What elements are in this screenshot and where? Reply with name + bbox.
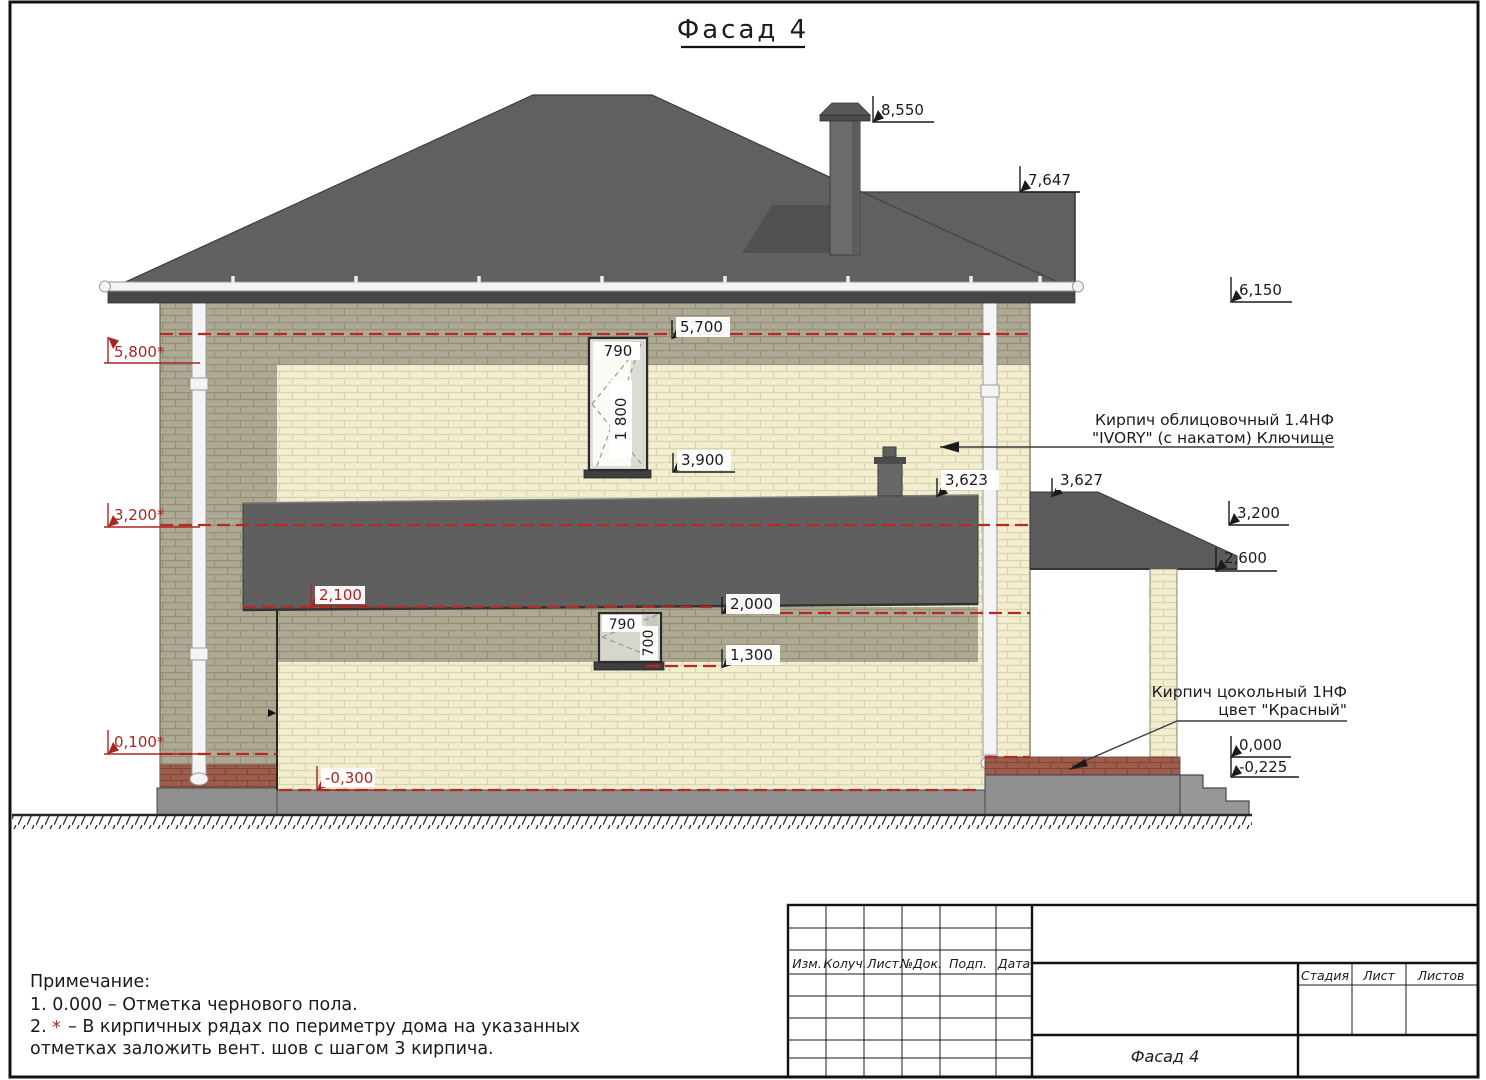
lower-window-height-label: 700 xyxy=(641,630,657,657)
tb-col-ndok: №Док. xyxy=(899,956,942,971)
gutter xyxy=(105,282,1078,291)
base-brick-text-line2: цвет "Красный" xyxy=(1218,701,1347,719)
porch-foundation xyxy=(985,775,1180,815)
downpipe-left-tube xyxy=(192,295,206,780)
left-foundation xyxy=(157,788,277,815)
ground-hatch xyxy=(12,816,1252,829)
porch-roof xyxy=(1030,492,1237,569)
notes-item2-cont: отметках заложить вент. шов с шагом 3 ки… xyxy=(30,1039,494,1059)
bay-vent-cap xyxy=(874,457,906,464)
tb-col-podp: Подп. xyxy=(949,956,987,971)
title-block-dividers xyxy=(1032,905,1478,1077)
drawing-sheet: Фасад 4 790 1 800 790 700 xyxy=(0,0,1486,1080)
chimney-cap xyxy=(820,103,870,115)
facing-brick-text-line1: Кирпич облицовочный 1.4НФ xyxy=(1095,411,1334,429)
title-block-left-rows xyxy=(788,928,1032,1058)
downpipe-left-shoe xyxy=(190,773,208,785)
tb-col-izm: Изм. xyxy=(792,956,821,971)
downpipe-left-sleeve xyxy=(190,378,208,390)
facing-brick-text-line2: "IVORY" (с накатом) Ключище xyxy=(1092,429,1334,447)
downpipe-right-tube xyxy=(983,300,997,755)
upper-window-height-label: 1 800 xyxy=(612,398,630,441)
level-window2-sill-label: 3,900 xyxy=(681,451,724,469)
notes-item1: 1. 0.000 – Отметка чернового пола. xyxy=(30,995,358,1015)
level-porch-roof-top-label: 3,627 xyxy=(1060,471,1103,489)
tb-stadia: Стадия xyxy=(1301,968,1349,983)
level-mark-rear-ridge: 7,647 xyxy=(1020,166,1080,192)
base-brick-text-line1: Кирпич цокольный 1НФ xyxy=(1152,683,1347,701)
level-window2-head-label: 5,700 xyxy=(680,318,723,336)
tb-col-data: Дата xyxy=(997,956,1030,971)
lower-window-width-label: 790 xyxy=(609,617,636,633)
level-rear-ridge-label: 7,647 xyxy=(1028,171,1071,189)
level-mark-plinth-bottom: -0,300 xyxy=(317,766,375,790)
level-porch-floor-bottom-label: -0,225 xyxy=(1239,758,1287,776)
level-mark-porch-floor-bottom: -0,225 xyxy=(1231,757,1299,777)
left-plinth-red-brick xyxy=(160,765,277,790)
chimney-cap-base xyxy=(820,115,870,121)
level-mark-window2-sill: 3,900 xyxy=(673,450,735,472)
level-porch-floor-label: 0,000 xyxy=(1239,736,1282,754)
chimney-body-shade xyxy=(852,120,860,255)
bay-vent-pipe xyxy=(883,447,896,457)
tb-listov: Листов xyxy=(1417,968,1465,983)
tb-col-koluch: Колуч. xyxy=(823,956,866,971)
notes-item2-star: * xyxy=(52,1018,61,1038)
level-window1-sill-label: 1,300 xyxy=(730,646,773,664)
porch-steps xyxy=(1180,775,1249,815)
facade-drawing: Фасад 4 790 1 800 790 700 xyxy=(0,0,1486,1080)
level-vent-mid-label: 3,200* xyxy=(114,506,165,524)
level-window1-head-label: 2,000 xyxy=(730,595,773,613)
level-plinth-bottom-label: -0,300 xyxy=(325,769,373,787)
tb-list: Лист xyxy=(1362,968,1395,983)
gutter-endcap-right xyxy=(1073,281,1084,292)
level-mark-porch-roof-mid: 3,200 xyxy=(1229,501,1289,525)
level-mark-window1-head: 2,000 xyxy=(722,594,780,614)
level-bay-roof-bottom-label: 2,100 xyxy=(319,586,362,604)
main-roof xyxy=(108,95,1075,290)
level-bay-roof-top-label: 3,623 xyxy=(945,471,988,489)
porch-pillar xyxy=(1150,569,1177,757)
title-block: Изм. Колуч. Лист №Док. Подп. Дата Стадия… xyxy=(788,905,1478,1077)
notes-item2-prefix: 2. xyxy=(30,1017,47,1037)
level-chimney-label: 8,550 xyxy=(881,101,924,119)
front-foundation xyxy=(277,790,985,815)
level-mark-eaves: 6,150 xyxy=(1231,277,1292,302)
roof-fascia xyxy=(108,290,1075,303)
upper-window: 790 1 800 xyxy=(584,338,651,478)
level-mark-porch-roof-edge: 2,600 xyxy=(1216,547,1277,571)
roof-group xyxy=(100,95,1084,303)
upper-window-width-label: 790 xyxy=(604,342,633,360)
lower-window: 790 700 xyxy=(594,613,664,670)
gutter-endcap-left xyxy=(100,281,111,292)
page-title: Фасад 4 xyxy=(677,15,809,45)
notes-block: Примечание: 1. 0.000 – Отметка чернового… xyxy=(30,972,580,1059)
level-mark-window2-head: 5,700 xyxy=(672,317,730,339)
downpipe-left-sleeve2 xyxy=(190,648,208,660)
notes-heading: Примечание: xyxy=(30,972,150,992)
level-porch-roof-edge-label: 2,600 xyxy=(1224,549,1267,567)
level-mark-window1-sill: 1,300 xyxy=(722,645,780,668)
level-mark-bay-roof-bottom: 2,100 xyxy=(311,583,369,606)
level-eaves-label: 6,150 xyxy=(1239,281,1282,299)
level-mark-chimney: 8,550 xyxy=(873,96,934,122)
upper-window-sill xyxy=(584,470,651,478)
title-block-left-columns xyxy=(826,905,996,1077)
downpipe-right xyxy=(981,300,999,770)
level-porch-roof-mid-label: 3,200 xyxy=(1237,504,1280,522)
ground-group xyxy=(12,815,1252,829)
level-mark-porch-floor: 0,000 xyxy=(1231,736,1291,757)
tb-col-list: Лист xyxy=(866,956,899,971)
level-vent-top-label: 5,800* xyxy=(114,343,165,361)
level-vent-bottom-label: 0,100* xyxy=(114,733,165,751)
downpipe-right-sleeve xyxy=(981,385,999,397)
notes-item2-text: – В кирпичных рядах по периметру дома на… xyxy=(68,1017,580,1037)
downpipe-left xyxy=(190,295,208,785)
tb-drawing-name: Фасад 4 xyxy=(1131,1047,1200,1066)
bay-vent-body xyxy=(878,462,902,496)
